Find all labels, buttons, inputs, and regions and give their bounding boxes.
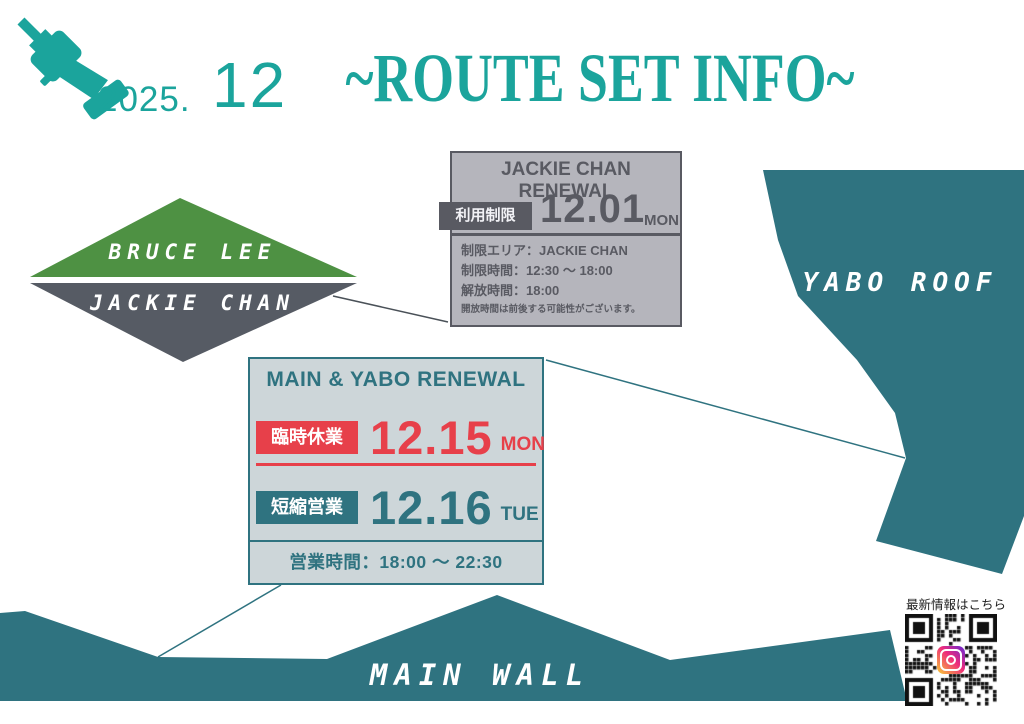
connector-card-to-mainwall xyxy=(158,585,281,657)
restriction-date: 12.01 xyxy=(540,189,645,229)
yabo-roof-shape xyxy=(763,170,1024,574)
connector-diamond-to-card xyxy=(333,296,448,322)
year-label: 2025. xyxy=(98,80,191,120)
short-hours-badge: 短縮営業 xyxy=(256,491,358,524)
restriction-details: 制限エリア：JACKIE CHAN 制限時間：12:30 〜 18:00 解放時… xyxy=(452,233,680,325)
qr-caption: 最新情報はこちら xyxy=(878,594,1006,613)
jackie-chan-label: JACKIE CHAN xyxy=(55,291,330,315)
jackie-chan-renewal-card: JACKIE CHAN RENEWAL 利用制限 12.01 MON 制限エリア… xyxy=(450,151,682,327)
yabo-roof-label: YABO ROOF xyxy=(788,268,1012,298)
restriction-badge: 利用制限 xyxy=(439,202,532,230)
connector-card-to-yabo xyxy=(546,360,905,458)
short-hours-day: TUE xyxy=(501,504,539,526)
short-hours-row: 短縮営業 12.16 TUE xyxy=(256,481,536,533)
bruce-lee-label: BRUCE LEE xyxy=(55,240,330,264)
main-wall-label: MAIN WALL xyxy=(348,658,612,692)
closed-day: MON xyxy=(501,434,545,456)
detail-release: 解放時間：18:00 xyxy=(461,281,671,301)
bruce-lee-shape xyxy=(30,198,357,277)
card-heading: MAIN & YABO RENEWAL xyxy=(250,368,542,392)
business-hours: 営業時間：18:00 〜 22:30 xyxy=(250,540,542,583)
closed-day-row: 臨時休業 12.15 MON xyxy=(256,411,536,466)
restriction-day: MON xyxy=(644,212,679,229)
closed-date: 12.15 xyxy=(370,414,493,461)
short-hours-date: 12.16 xyxy=(370,484,493,531)
page-title: ~ROUTE SET INFO~ xyxy=(331,40,869,118)
poster-root: 2025. 12 ~ROUTE SET INFO~ BRUCE LEE JACK… xyxy=(0,0,1024,724)
detail-note: 開放時間は前後する可能性がございます。 xyxy=(461,303,671,318)
closed-badge: 臨時休業 xyxy=(256,421,358,454)
instagram-icon xyxy=(937,646,965,674)
detail-time: 制限時間：12:30 〜 18:00 xyxy=(461,261,671,281)
detail-area: 制限エリア：JACKIE CHAN xyxy=(461,241,671,261)
month-label: 12 xyxy=(212,48,287,122)
main-yabo-renewal-card: MAIN & YABO RENEWAL 臨時休業 12.15 MON 短縮営業 … xyxy=(248,357,544,585)
